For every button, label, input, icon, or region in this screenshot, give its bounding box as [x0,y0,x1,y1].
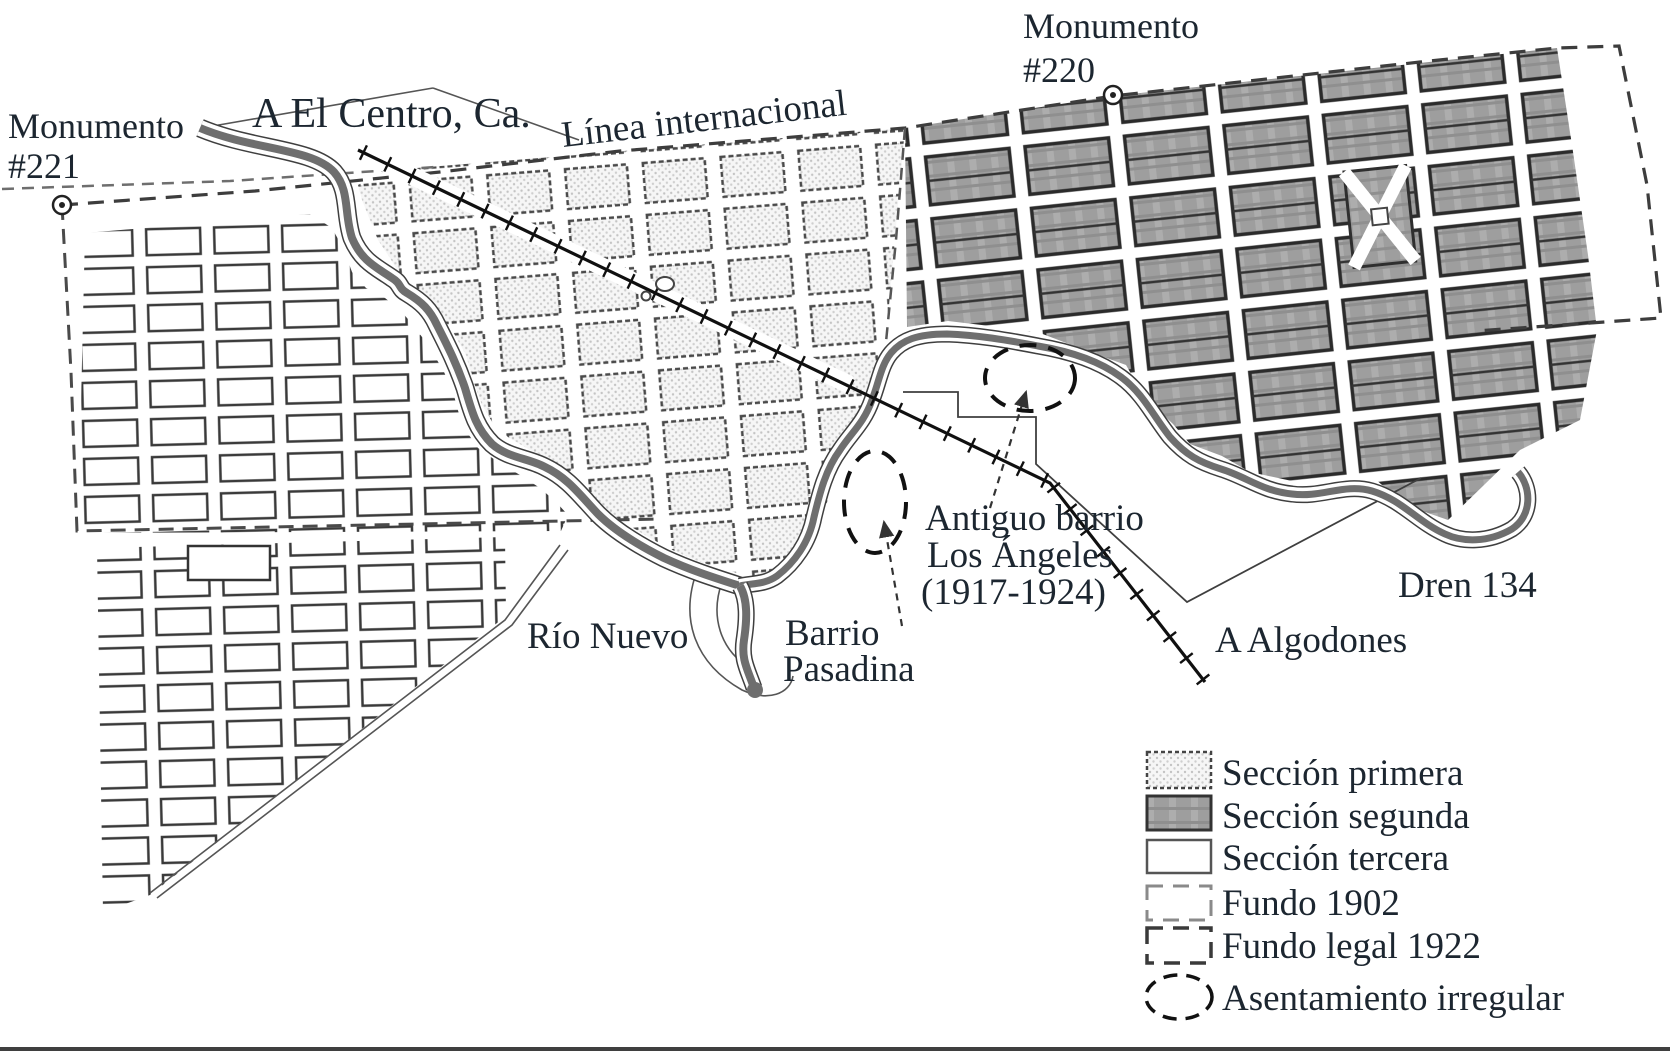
label-a-algodones: A Algodones [1215,620,1407,661]
label-monumento-220-line2: #220 [1023,50,1095,90]
barrio-pasadina-ellipse-icon [844,451,906,553]
antiguo-barrio-ellipse-icon [985,345,1075,411]
legend-label-asentamiento-irregular: Asentamiento irregular [1222,978,1564,1019]
legend-swatch-seccion-tercera [1147,840,1211,873]
label-antiguo-barrio-line1: Antiguo barrio [925,498,1144,539]
seccion-tercera-lower-region [97,537,506,912]
seccion-segunda-region [905,48,1597,520]
legend-swatch-fundo-legal-1922 [1147,928,1211,963]
legend: Sección primera Sección segunda Sección … [1146,752,1564,1019]
historic-map: Monumento #221 A El Centro, Ca. Línea in… [0,0,1670,1061]
legend-swatch-seccion-primera [1147,752,1211,788]
legend-swatch-seccion-segunda [1147,796,1211,830]
label-antiguo-barrio-line3: (1917-1924) [921,572,1106,613]
large-white-block [188,546,270,580]
label-rio-nuevo: Río Nuevo [527,616,688,657]
map-canvas: Monumento #221 A El Centro, Ca. Línea in… [0,0,1670,1061]
label-barrio-pasadina-line2: Pasadina [783,649,915,690]
label-monumento-220-line1: Monumento [1023,6,1199,46]
legend-swatch-asentamiento-irregular [1146,975,1212,1019]
rail-glorieta-small-icon [642,292,651,301]
legend-label-seccion-segunda: Sección segunda [1222,796,1470,837]
label-monumento-221-line2: #221 [8,146,80,186]
label-dren-134: Dren 134 [1398,565,1537,606]
monument-221-marker-icon [53,196,71,214]
legend-swatch-fundo-1902 [1147,886,1211,920]
river-south-branch [740,586,763,698]
rail-glorieta-icon [656,277,674,291]
legend-label-fundo-legal-1922: Fundo legal 1922 [1222,926,1481,967]
label-a-el-centro: A El Centro, Ca. [252,91,531,137]
label-antiguo-barrio-line2: Los Ángeles [927,534,1113,576]
label-monumento-221-line1: Monumento [8,106,184,146]
plaza-block [1344,166,1416,268]
legend-label-seccion-tercera: Sección tercera [1222,838,1449,879]
label-barrio-pasadina-line1: Barrio [785,613,880,654]
monument-220-marker-icon [1104,86,1122,104]
legend-label-fundo-1902: Fundo 1902 [1222,883,1400,924]
legend-label-seccion-primera: Sección primera [1222,753,1463,794]
